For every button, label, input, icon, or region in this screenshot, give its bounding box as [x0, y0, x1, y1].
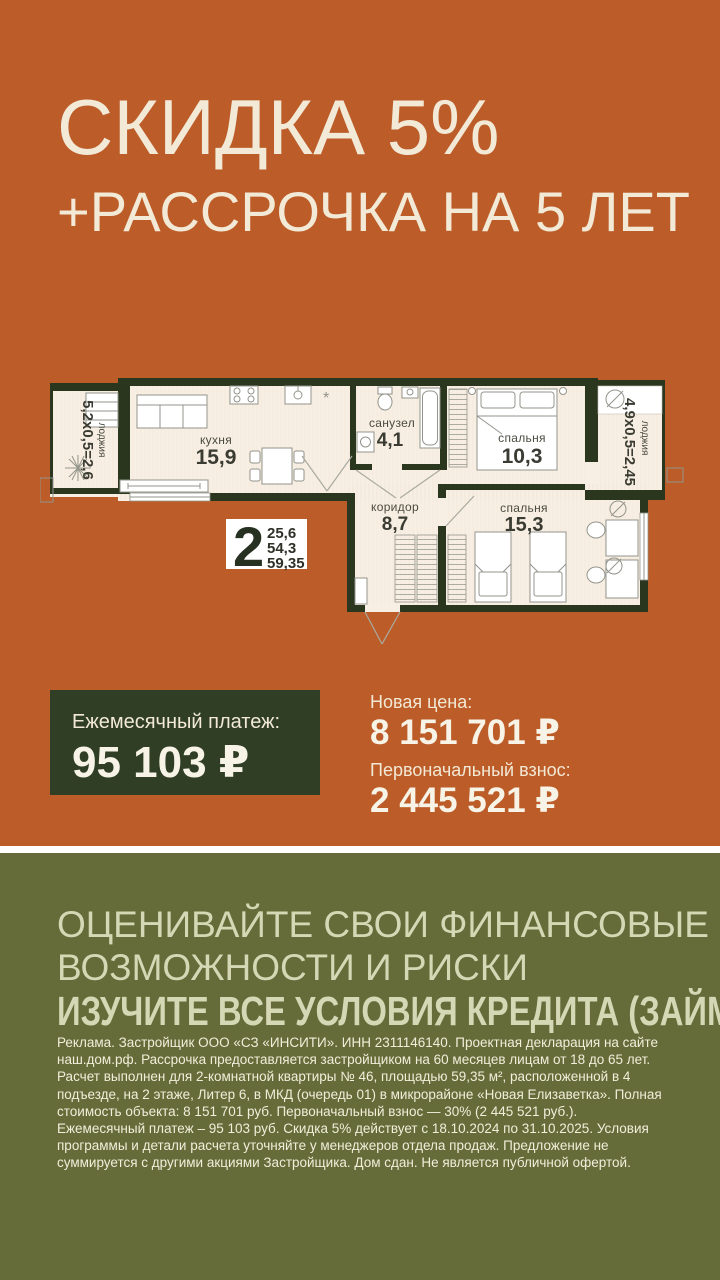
kitchen-label: кухня	[200, 433, 232, 447]
hero-headline: СКИДКА 5% +РАССРОЧКА НА 5 ЛЕТ	[57, 88, 690, 240]
promo-banner: СКИДКА 5% +РАССРОЧКА НА 5 ЛЕТ	[0, 0, 720, 1280]
legal-disclaimer: Реклама. Застройщик ООО «СЗ «ИНСИТИ». ИН…	[57, 1034, 669, 1172]
rooms-count: 2	[233, 515, 264, 578]
single-bed	[530, 532, 566, 602]
washbasin-icon	[402, 387, 418, 398]
downpayment-block: Первоначальный взнос: 2 445 521 ₽	[370, 760, 571, 819]
bedroom-small-area: 10,3	[502, 445, 543, 468]
wardrobe	[448, 535, 466, 602]
room-bedroom-small: спальня 10,3	[449, 388, 567, 471]
price-column: Новая цена: 8 151 701 ₽ Первоначальный в…	[370, 692, 571, 819]
single-bed	[475, 532, 511, 602]
installment-headline: +РАССРОЧКА НА 5 ЛЕТ	[57, 184, 690, 240]
bottom-olive-section: ОЦЕНИВАЙТЕ СВОИ ФИНАНСОВЫЕ ВОЗМОЖНОСТИ И…	[0, 853, 720, 1280]
corridor-label: коридор	[371, 500, 419, 514]
apartment-info-box: 2 25,6 54,3 59,35	[226, 515, 307, 578]
balcony-right-dims: 4,9x0,5=2,45	[621, 398, 638, 486]
monthly-payment-value: 95 103 ₽	[72, 741, 320, 785]
balcony-right-label: лоджия	[639, 421, 650, 456]
floor-plan: 5,2x0,5=2,6 лоджия	[40, 372, 685, 667]
toilet-icon	[378, 387, 392, 410]
bathtub-icon	[420, 388, 440, 448]
bathroom-area: 4,1	[377, 430, 404, 451]
washing-machine-icon	[357, 432, 374, 452]
new-price-value: 8 151 701 ₽	[370, 714, 571, 751]
new-price-label: Новая цена:	[370, 692, 571, 712]
top-orange-section: СКИДКА 5% +РАССРОЧКА НА 5 ЛЕТ	[0, 0, 720, 846]
sink-icon	[285, 386, 311, 404]
monthly-payment-box: Ежемесячный платеж: 95 103 ₽	[50, 690, 320, 795]
door-leaf	[355, 578, 367, 604]
total-area: 59,35	[267, 555, 305, 572]
bedroom-large-area: 15,3	[505, 514, 544, 536]
corridor-area: 8,7	[382, 514, 408, 535]
downpayment-label: Первоначальный взнос:	[370, 760, 571, 780]
bedroom-small-label: спальня	[498, 431, 546, 445]
bathroom-label: санузел	[369, 416, 415, 430]
asterisk-symbol: *	[323, 390, 329, 407]
monthly-payment-label: Ежемесячный платеж:	[72, 710, 320, 734]
warning-line-1: ОЦЕНИВАЙТЕ СВОИ ФИНАНСОВЫЕ	[57, 903, 720, 946]
stove-icon	[230, 386, 258, 404]
bedroom-large-label: спальня	[500, 501, 548, 515]
downpayment-value: 2 445 521 ₽	[370, 782, 571, 819]
financial-warning: ОЦЕНИВАЙТЕ СВОИ ФИНАНСОВЫЕ ВОЗМОЖНОСТИ И…	[57, 903, 720, 1033]
entrance-door	[365, 612, 400, 644]
ac-unit	[667, 468, 683, 482]
wardrobe	[449, 389, 467, 467]
new-price-block: Новая цена: 8 151 701 ₽	[370, 692, 571, 751]
warning-line-3: ИЗУЧИТЕ ВСЕ УСЛОВИЯ КРЕДИТА (ЗАЙМА)	[57, 989, 720, 1033]
warning-line-2: ВОЗМОЖНОСТИ И РИСКИ	[57, 946, 720, 989]
section-divider	[0, 846, 720, 853]
discount-headline: СКИДКА 5%	[57, 88, 690, 168]
balcony-left-dims: 5,2x0,5=2,6	[79, 400, 96, 480]
balcony-left-label: лоджия	[96, 423, 107, 458]
kitchen-area: 15,9	[196, 446, 237, 469]
